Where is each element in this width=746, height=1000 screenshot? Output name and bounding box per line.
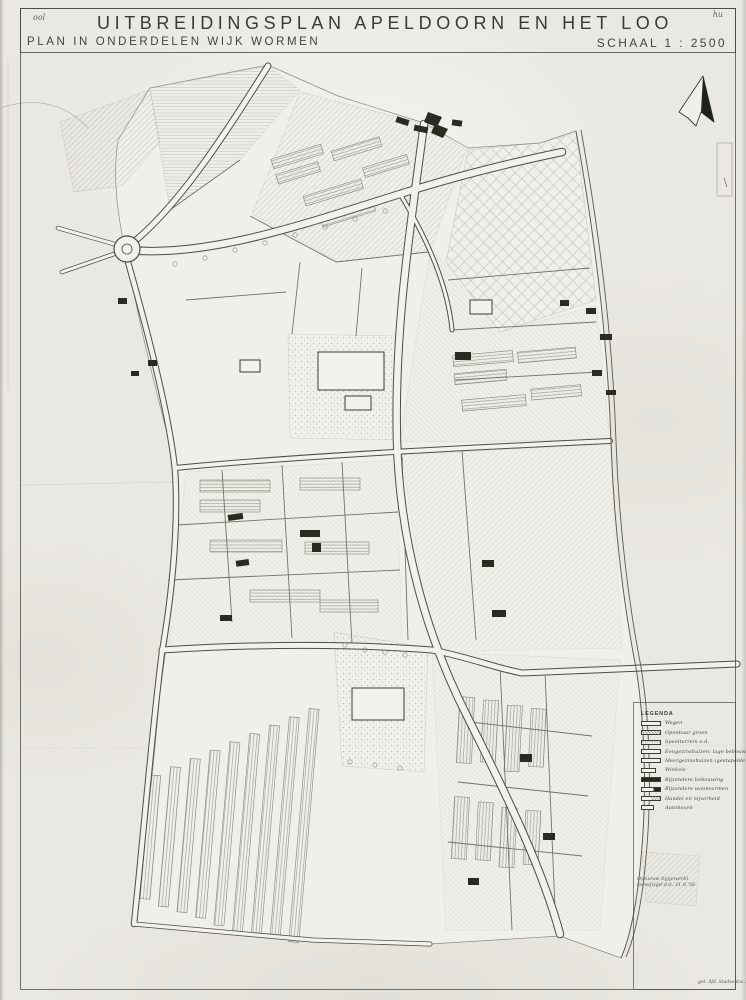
legend-box: LEGENDA Wegen Openbaar groen Speelterrei… [633,702,736,990]
scanned-map-sheet: ool UITBREIDINGSPLAN APELDOORN EN HET LO… [0,0,746,1000]
legend-item-label: Openbaar groen [665,730,708,736]
legend-swatch [641,749,661,754]
corner-annotation-right: hu [713,10,723,19]
legend-item-label: Speelterrein e.d. [665,739,709,745]
legend-item-label: Eengezinshuizen: lage bebouwing [665,749,746,755]
map-title: UITBREIDINGSPLAN APELDOORN EN HET LOO [97,13,673,34]
legend-item-label: Handel en nijverheid [665,796,720,802]
title-block: ool UITBREIDINGSPLAN APELDOORN EN HET LO… [20,8,736,53]
legend-item: Wegen [641,720,735,726]
legend-swatch [641,730,661,735]
legend-item: Winkels [641,767,735,773]
legend-swatch [641,777,661,782]
signature-annotation: get. Afd. Stadsontw. 2-1 [698,980,746,985]
legend-item: Openbaar groen [641,730,735,736]
legend-item: Eengezinshuizen: lage bebouwing [641,749,735,755]
legend-swatch [641,758,661,763]
legend-item-label: Bijzondere woonvormen [665,786,728,792]
legend-item: Meergezinshuizen (gestapelde bebouwing) [641,758,735,764]
revision-line: Gewijzigd d.d. 31.8.'56 [637,882,695,888]
legend-item-label: Meergezinshuizen (gestapelde bebouwing) [665,758,746,764]
legend-swatch [641,796,661,801]
legend-item-label: Wegen [665,720,682,726]
legend-item-label: Autoboxen [665,805,693,811]
legend-item: Handel en nijverheid [641,796,735,802]
legend-item: Speelterrein e.d. [641,739,735,745]
legend-item-label: Winkels [665,767,686,773]
sheet-frame [20,8,736,990]
legend-swatch [641,721,661,726]
legend-item: Bijzondere woonvormen [641,786,735,792]
scale-label: SCHAAL 1 : 2500 [597,36,727,50]
legend-swatch [641,740,661,745]
legend-swatch [641,787,661,792]
map-subtitle: PLAN IN ONDERDELEN WIJK WORMEN [27,36,320,48]
legend-item: Autoboxen [641,805,735,811]
legend-item-label: Bijzondere bebouwing [665,777,723,783]
legend-swatch [641,805,654,810]
legend-item: Bijzondere bebouwing [641,777,735,783]
legend-swatch [641,768,656,773]
corner-annotation-left: ool [33,13,45,22]
legend-title: LEGENDA [641,711,735,717]
revision-annotation: Opnieuw bijgewerkt Gewijzigd d.d. 31.8.'… [637,876,695,888]
